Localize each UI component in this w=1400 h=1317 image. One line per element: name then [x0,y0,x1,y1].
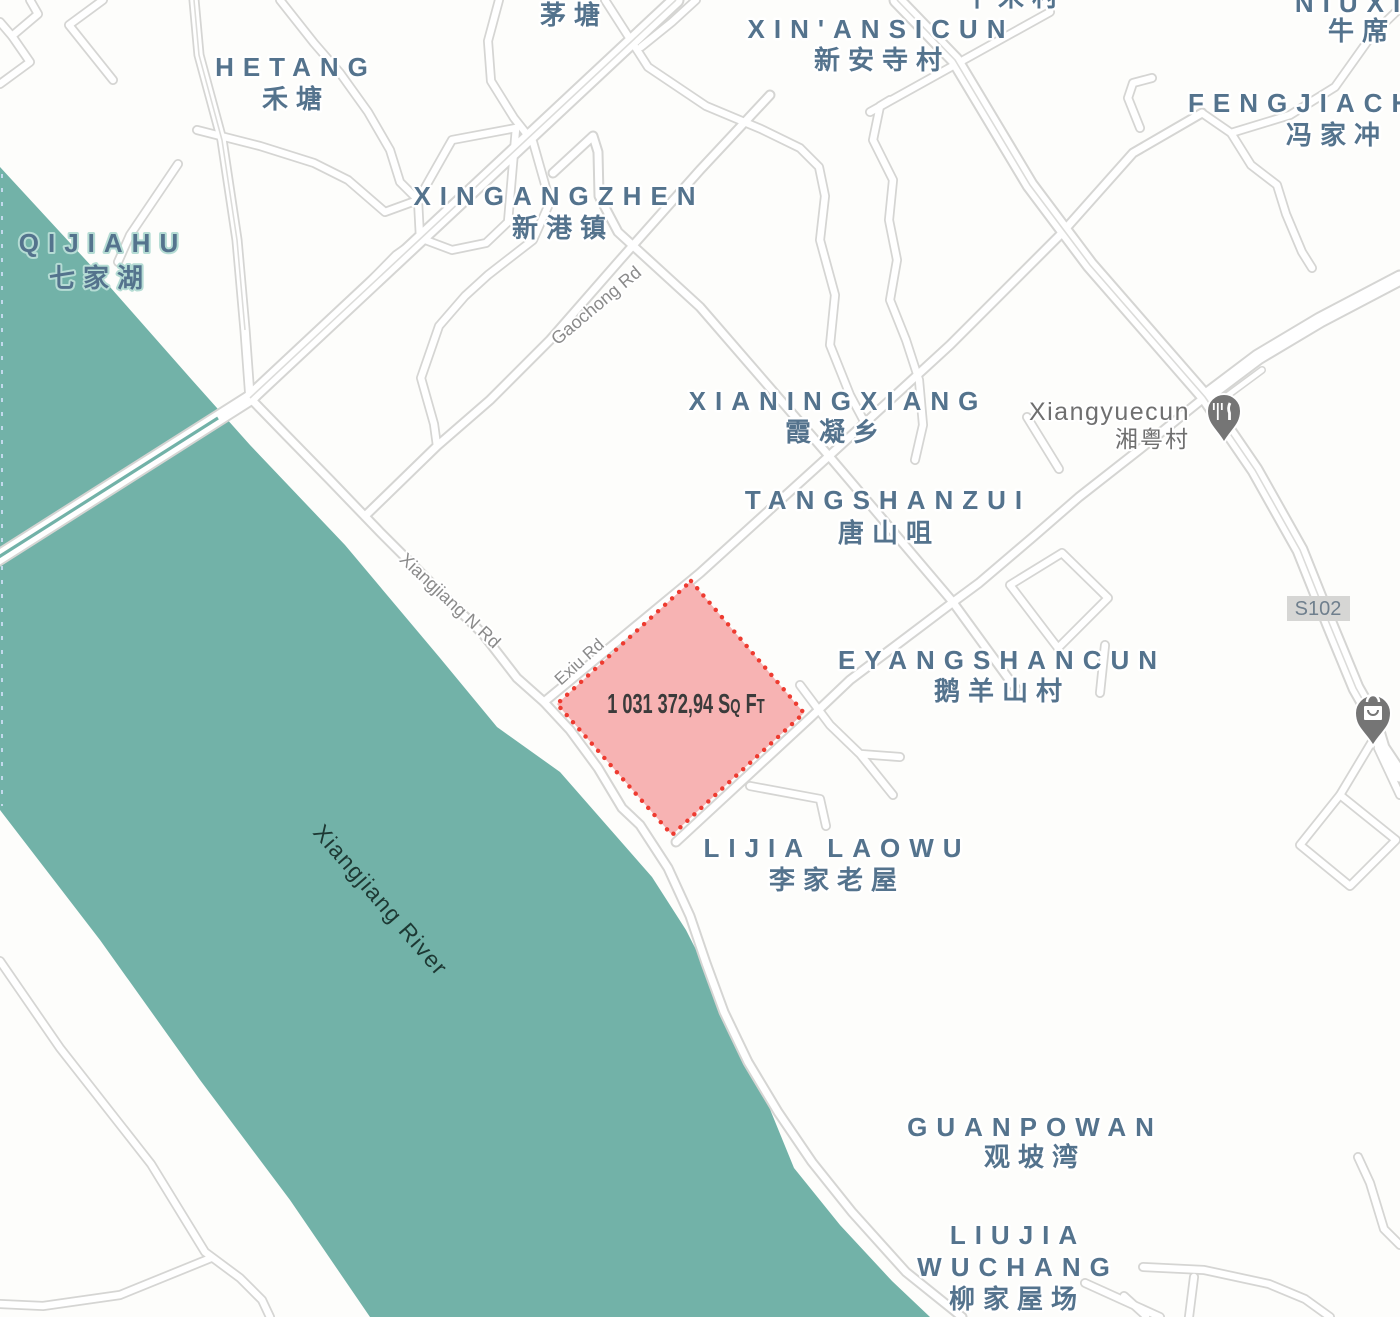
svg-text:鹅羊山村: 鹅羊山村 [934,676,1070,706]
svg-text:Xiangyuecun: Xiangyuecun [1029,398,1190,426]
svg-text:茅塘: 茅塘 [540,0,608,30]
svg-text:EYANGSHANCUN: EYANGSHANCUN [838,645,1166,675]
svg-text:新港镇: 新港镇 [512,213,614,243]
svg-text:HETANG: HETANG [215,52,377,82]
svg-text:十米村: 十米村 [964,0,1066,12]
svg-text:柳家屋场: 柳家屋场 [949,1284,1085,1314]
svg-text:七家湖: 七家湖 [49,263,151,293]
svg-text:李家老屋: 李家老屋 [768,865,905,895]
svg-text:XIN'ANSICUN: XIN'ANSICUN [748,14,1015,44]
svg-text:霞凝乡: 霞凝乡 [785,417,887,447]
svg-text:S102: S102 [1295,598,1342,620]
svg-text:LIUJIA: LIUJIA [950,1220,1086,1250]
svg-text:新安寺村: 新安寺村 [814,45,950,75]
svg-text:1 031 372,94 SQ FT: 1 031 372,94 SQ FT [607,688,765,719]
svg-text:FENGJIACHONG: FENGJIACHONG [1188,88,1400,118]
svg-text:LIJIA LAOWU: LIJIA LAOWU [703,833,970,863]
svg-text:湘粤村: 湘粤村 [1115,426,1190,452]
svg-text:牛席: 牛席 [1328,16,1396,46]
svg-text:GUANPOWAN: GUANPOWAN [907,1112,1163,1142]
svg-text:WUCHANG: WUCHANG [917,1252,1119,1282]
svg-text:TANGSHANZUI: TANGSHANZUI [745,485,1031,515]
svg-text:唐山咀: 唐山咀 [838,518,940,548]
svg-text:XIANINGXIANG: XIANINGXIANG [689,386,988,416]
svg-text:观坡湾: 观坡湾 [984,1142,1086,1172]
svg-text:冯家冲: 冯家冲 [1286,120,1388,150]
svg-text:QIJIAHU: QIJIAHU [19,228,187,258]
svg-text:禾塘: 禾塘 [262,84,330,114]
svg-text:XINGANGZHEN: XINGANGZHEN [413,181,704,211]
